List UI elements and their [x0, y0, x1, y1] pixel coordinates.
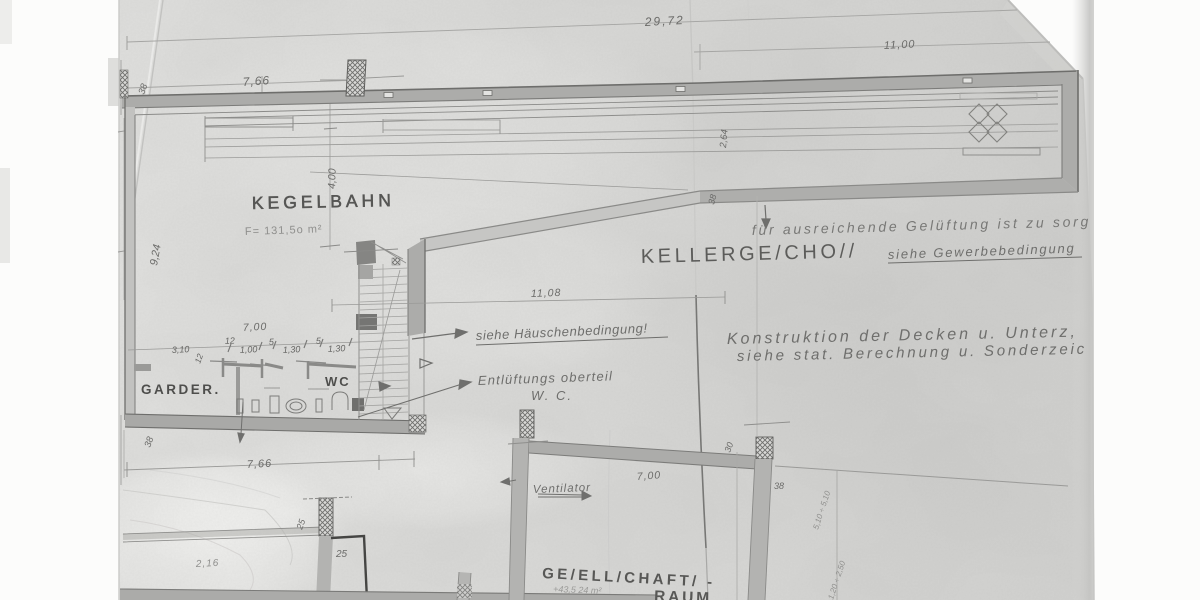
svg-text:7,00: 7,00 — [243, 321, 268, 334]
svg-text:3,10: 3,10 — [172, 344, 190, 355]
svg-text:4,00: 4,00 — [326, 168, 339, 189]
svg-text:11,00: 11,00 — [884, 38, 916, 52]
svg-text:KEGELBAHN: KEGELBAHN — [252, 190, 395, 213]
svg-text:2,64: 2,64 — [718, 129, 731, 149]
svg-text:29,72: 29,72 — [643, 13, 685, 29]
svg-text:11,08: 11,08 — [531, 287, 562, 300]
svg-text:RAUM: RAUM — [654, 588, 712, 600]
svg-text:7,66: 7,66 — [242, 73, 270, 89]
svg-text:+43,5 24 m²: +43,5 24 m² — [553, 584, 603, 596]
svg-text:7,66: 7,66 — [247, 458, 273, 471]
svg-text:2,16: 2,16 — [195, 558, 220, 570]
svg-text:25: 25 — [335, 549, 348, 560]
svg-text:7,00: 7,00 — [636, 469, 661, 483]
svg-text:Ventilator: Ventilator — [533, 482, 592, 496]
svg-text:WC: WC — [325, 374, 351, 389]
svg-text:1,00: 1,00 — [240, 344, 258, 355]
svg-text:1,30: 1,30 — [283, 344, 301, 355]
svg-text:12: 12 — [225, 335, 236, 346]
svg-text:GARDER.: GARDER. — [141, 382, 221, 397]
svg-text:1,30: 1,30 — [328, 343, 346, 354]
svg-text:W. C.: W. C. — [531, 388, 573, 403]
svg-text:38: 38 — [774, 481, 784, 491]
